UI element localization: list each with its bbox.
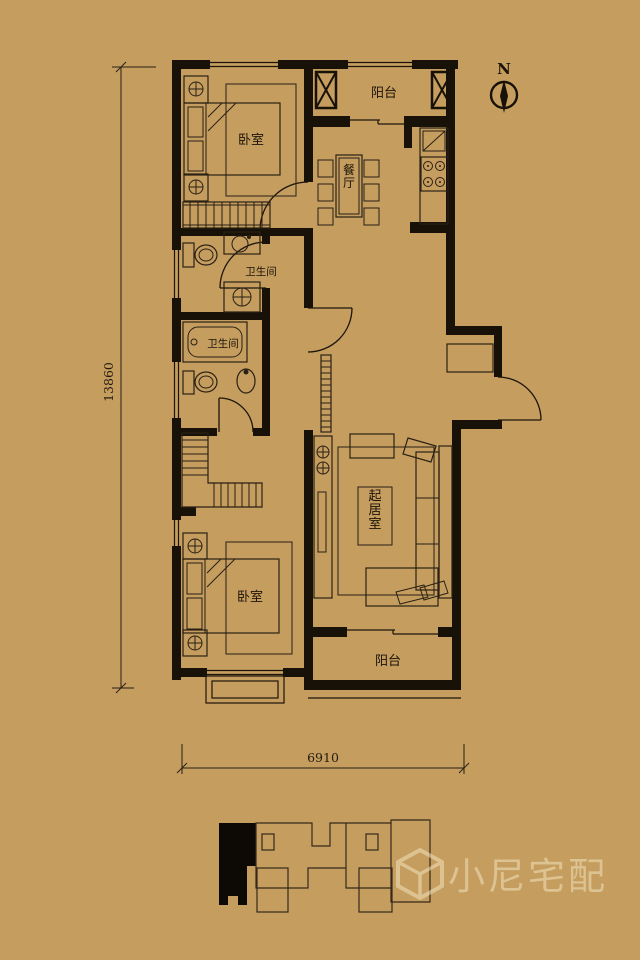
nightstand — [184, 174, 208, 201]
bay-window — [206, 676, 284, 703]
room-label-bedroom-top: 卧室 — [238, 132, 264, 148]
sliding-door-balcony-bottom — [347, 630, 438, 634]
dimension-height-label: 13860 — [101, 362, 116, 402]
kitchen-sink — [423, 131, 445, 151]
nightstand — [184, 76, 208, 103]
wardrobe — [183, 202, 270, 228]
kitchen-counter — [420, 128, 448, 224]
door-bathroom-lower — [219, 398, 253, 432]
entry-screen — [321, 355, 331, 432]
closet-l-shaped — [182, 433, 262, 507]
room-label-dining: 餐厅 — [343, 162, 355, 190]
nightstand — [183, 630, 207, 656]
dimension-horizontal: 6910 — [177, 744, 469, 774]
pedestal-sink — [237, 369, 255, 393]
stove — [421, 157, 448, 191]
furniture-kitchen — [420, 128, 448, 224]
chaise — [366, 568, 438, 606]
tv — [318, 492, 326, 552]
room-label-living-box: 起居室 — [358, 487, 392, 545]
bed — [183, 559, 279, 633]
shower — [224, 282, 260, 312]
window-bedroom-bottom-left — [172, 520, 181, 546]
room-label-bathroom-upper: 卫生间 — [245, 265, 277, 278]
door-entry — [498, 377, 541, 420]
compass-north-label: N — [497, 60, 511, 78]
dimension-vertical: 13860 — [101, 62, 156, 693]
dimension-width-label: 6910 — [307, 750, 339, 765]
window-balcony-top — [348, 60, 412, 69]
furniture-living — [314, 344, 493, 606]
furniture-bedroom-top — [183, 76, 296, 228]
room-label-bedroom-bottom: 卧室 — [237, 589, 263, 605]
watermark-cube-logo-icon — [398, 850, 442, 898]
key-plan-current-unit — [219, 823, 256, 905]
column-balcony-left — [316, 72, 336, 108]
sliding-door-balcony-top — [350, 120, 404, 124]
rug — [338, 447, 434, 595]
key-plan-core — [359, 868, 392, 912]
room-label-bathroom-lower: 卫生间 — [207, 337, 239, 350]
tv-cabinet — [314, 436, 332, 598]
entry-cabinet — [447, 344, 493, 372]
console-table — [350, 434, 394, 458]
floor-plan-canvas: 卧室 阳台 餐厅 卫生间 卫生间 起居室 卧室 阳台 13860 6910 N — [0, 0, 640, 960]
room-label-balcony-top: 阳台 — [371, 86, 397, 101]
nightstand — [183, 533, 207, 559]
toilet — [183, 371, 217, 394]
toilet — [183, 243, 217, 267]
room-label-living: 起居室 — [368, 489, 381, 532]
door-bedroom-top — [260, 182, 308, 230]
window-bathroom-upper-left — [172, 250, 181, 298]
key-plan-core — [257, 868, 288, 912]
bed — [184, 103, 280, 175]
window-bedroom-top — [210, 60, 278, 69]
room-label-balcony-bottom: 阳台 — [375, 654, 401, 669]
floor-plan-page: 卧室 阳台 餐厅 卫生间 卫生间 起居室 卧室 阳台 13860 6910 N — [0, 0, 640, 960]
window-bathroom-lower-left — [172, 362, 181, 418]
door-hallway — [308, 308, 352, 352]
door-bathroom-upper — [220, 242, 266, 288]
watermark-brand-text: 小尼宅配 — [448, 855, 608, 898]
fixtures-bathroom-lower — [183, 322, 255, 394]
compass: N — [491, 60, 517, 113]
